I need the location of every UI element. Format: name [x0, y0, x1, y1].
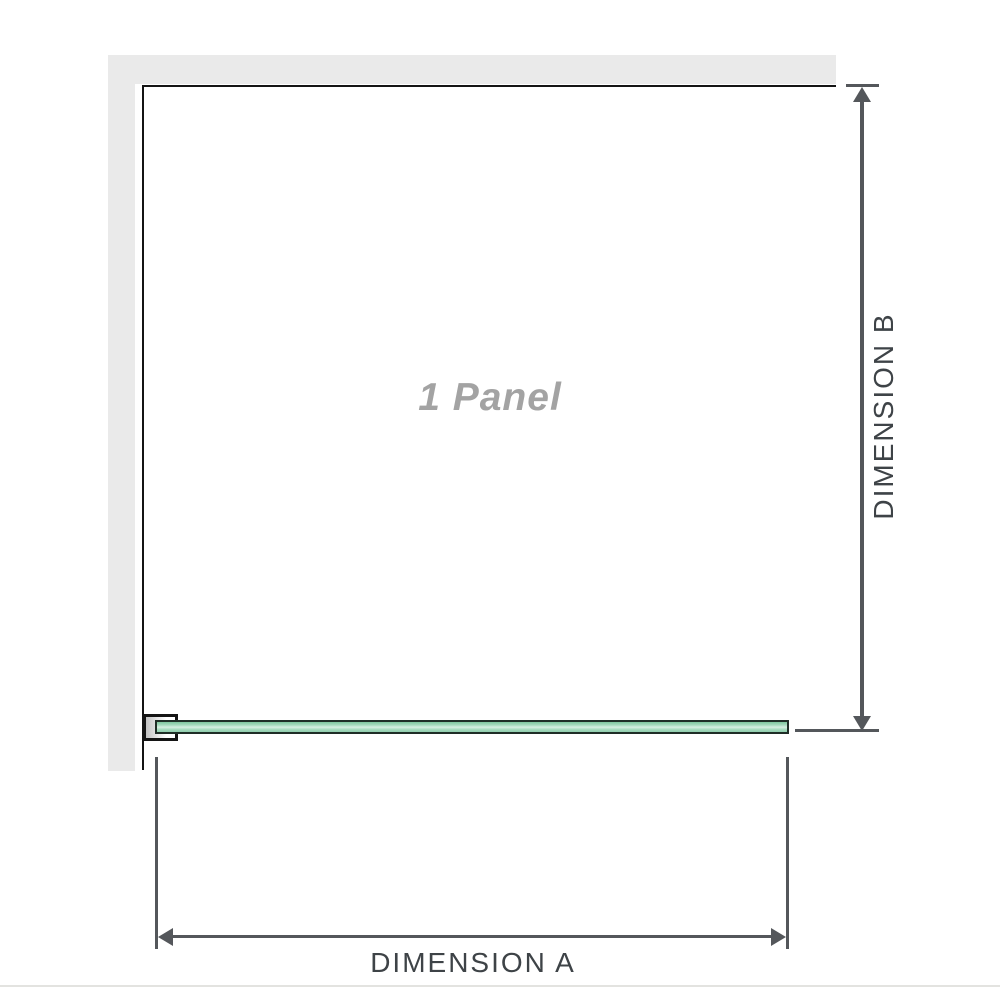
dimension-a-arrowhead-left-icon [158, 928, 173, 946]
dimension-a-extension-right [786, 757, 789, 949]
dimension-a-label: DIMENSION A [157, 947, 789, 979]
dimension-b-line [860, 98, 864, 718]
panel-watermark-label: 1 Panel [160, 376, 820, 420]
dimension-a-extension-left [155, 757, 158, 949]
wall-top-bar [108, 55, 836, 84]
dimension-b-arrowhead-up-icon [853, 87, 871, 102]
glass-panel-top-view [155, 720, 789, 734]
wall-left-bar [108, 55, 135, 771]
dimension-b-arrowhead-down-icon [853, 716, 871, 731]
dimension-b-label: DIMENSION B [869, 216, 899, 616]
dimension-a-arrowhead-right-icon [771, 928, 786, 946]
panel-outline-top-line [142, 85, 836, 87]
panel-outline-left-line [142, 85, 144, 770]
dimension-a-line [170, 935, 774, 938]
page-bottom-separator [0, 985, 1000, 987]
shower-panel-diagram: 1 Panel DIMENSION B DIMENSION A [0, 0, 1000, 1000]
